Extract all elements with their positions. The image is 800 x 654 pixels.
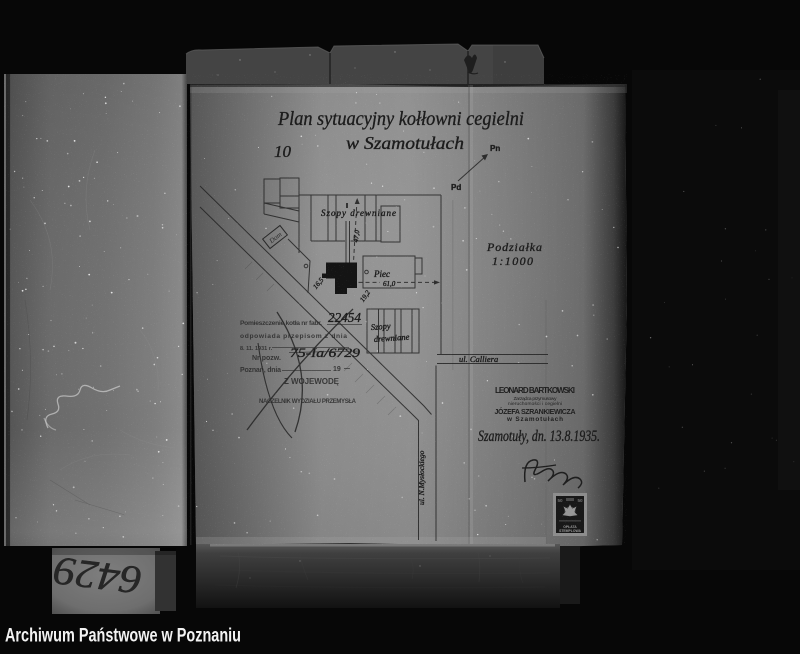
svg-text:Archiwum Państwowe w Poznaniu: Archiwum Państwowe w Poznaniu [5,625,241,647]
